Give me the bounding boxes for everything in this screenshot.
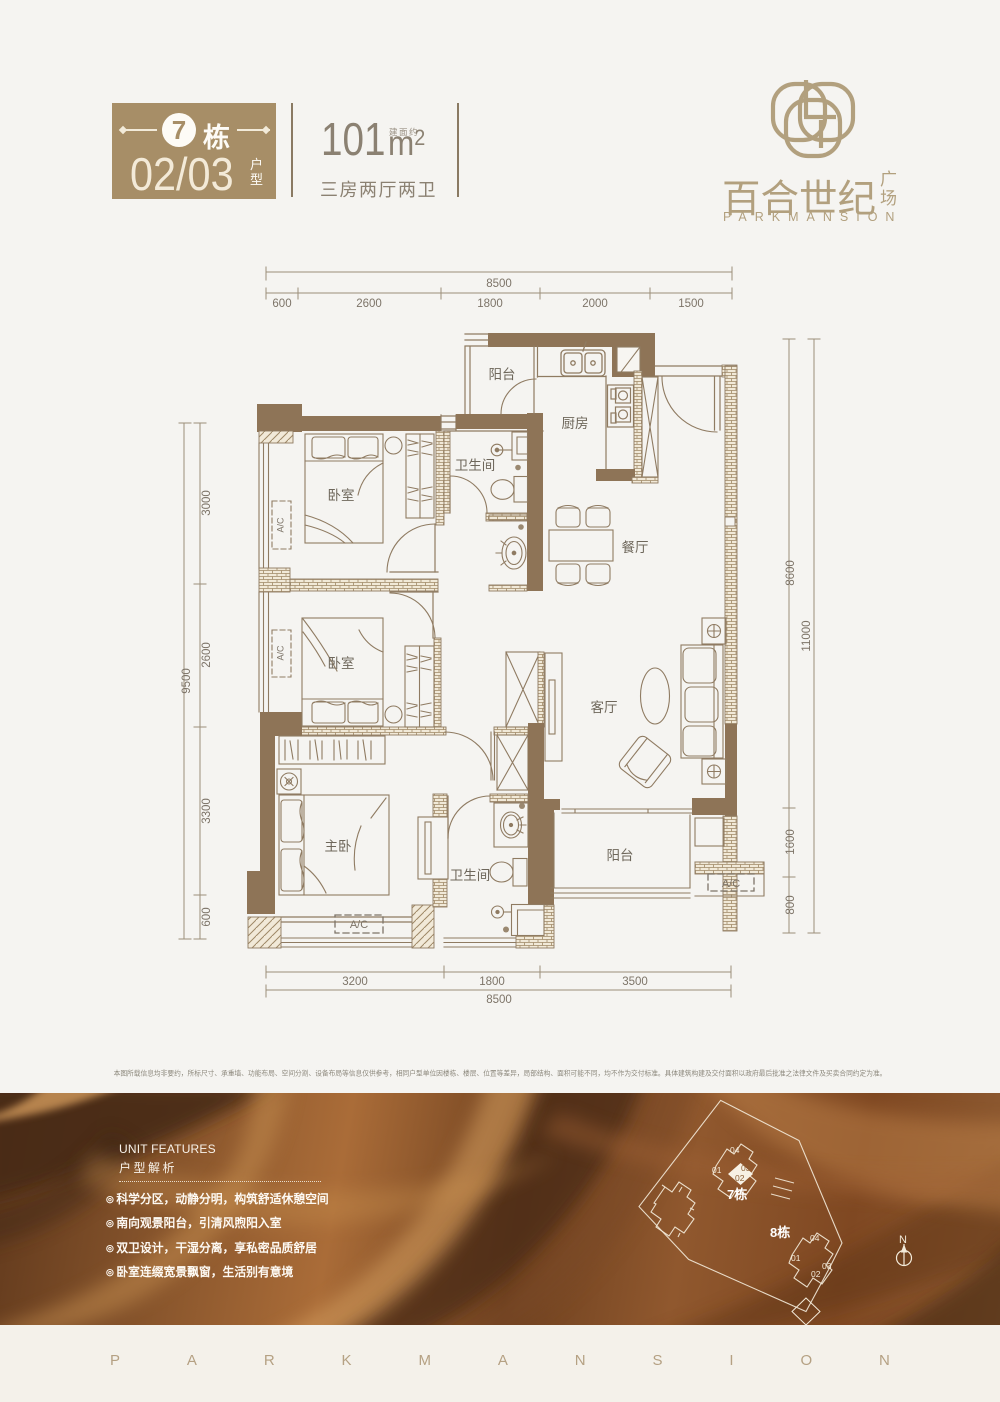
svg-text:04: 04 <box>810 1233 820 1243</box>
svg-text:01: 01 <box>791 1253 801 1263</box>
svg-text:阳台: 阳台 <box>607 848 634 863</box>
svg-text:2000: 2000 <box>582 298 608 310</box>
svg-text:1800: 1800 <box>479 976 505 988</box>
svg-text:8600: 8600 <box>785 560 797 586</box>
svg-text:2600: 2600 <box>201 642 213 668</box>
svg-text:1500: 1500 <box>678 298 704 310</box>
svg-text:客厅: 客厅 <box>591 699 618 715</box>
svg-text:A/C: A/C <box>350 919 368 931</box>
svg-text:A/C: A/C <box>275 517 285 533</box>
svg-text:N: N <box>899 1234 907 1246</box>
svg-text:800: 800 <box>785 895 797 914</box>
svg-text:600: 600 <box>272 298 291 310</box>
svg-text:厨房: 厨房 <box>562 416 589 431</box>
svg-text:02: 02 <box>735 1173 745 1183</box>
svg-text:A/C: A/C <box>275 645 285 661</box>
svg-text:卫生间: 卫生间 <box>450 868 491 883</box>
svg-text:1800: 1800 <box>477 298 503 310</box>
svg-text:3200: 3200 <box>342 976 368 988</box>
svg-text:03: 03 <box>741 1163 751 1173</box>
svg-text:3500: 3500 <box>622 976 648 988</box>
svg-text:卧室: 卧室 <box>328 655 355 671</box>
svg-text:2600: 2600 <box>356 298 382 310</box>
svg-text:卧室: 卧室 <box>328 487 355 503</box>
svg-text:7栋: 7栋 <box>727 1187 747 1202</box>
svg-text:3300: 3300 <box>201 798 213 824</box>
svg-text:3000: 3000 <box>201 490 213 516</box>
svg-text:A/C: A/C <box>722 878 740 890</box>
svg-text:1600: 1600 <box>785 829 797 855</box>
svg-text:03: 03 <box>822 1261 832 1271</box>
svg-text:8栋: 8栋 <box>770 1225 790 1240</box>
svg-text:阳台: 阳台 <box>489 367 516 382</box>
svg-text:11000: 11000 <box>801 620 813 651</box>
svg-text:9500: 9500 <box>181 668 193 694</box>
svg-text:8500: 8500 <box>486 994 512 1006</box>
svg-text:主卧: 主卧 <box>325 839 352 854</box>
svg-text:01: 01 <box>712 1165 722 1175</box>
svg-text:卫生间: 卫生间 <box>455 458 496 473</box>
svg-text:04: 04 <box>730 1145 740 1155</box>
svg-text:02: 02 <box>811 1269 821 1279</box>
svg-text:餐厅: 餐厅 <box>622 540 649 555</box>
svg-text:8500: 8500 <box>486 278 512 290</box>
svg-text:600: 600 <box>201 907 213 926</box>
